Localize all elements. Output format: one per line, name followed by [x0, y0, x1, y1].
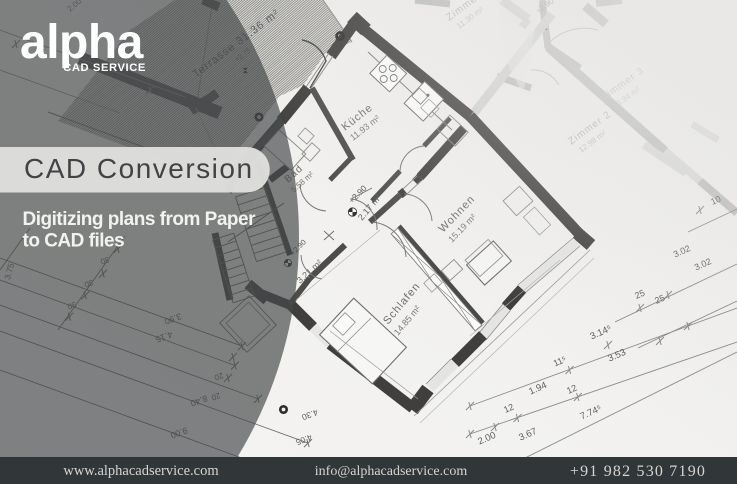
svg-text:Digitizing plans from Paper: Digitizing plans from Paper [23, 209, 257, 230]
svg-text:CAD Conversion: CAD Conversion [24, 153, 254, 184]
svg-text:info@alphacadservice.com: info@alphacadservice.com [315, 464, 468, 479]
svg-text:+91 982 530 7190: +91 982 530 7190 [570, 463, 706, 480]
svg-text:to CAD files: to CAD files [23, 231, 125, 252]
svg-text:www.alphacadservice.com: www.alphacadservice.com [63, 463, 219, 479]
svg-text:CAD SERVICE: CAD SERVICE [63, 62, 146, 74]
